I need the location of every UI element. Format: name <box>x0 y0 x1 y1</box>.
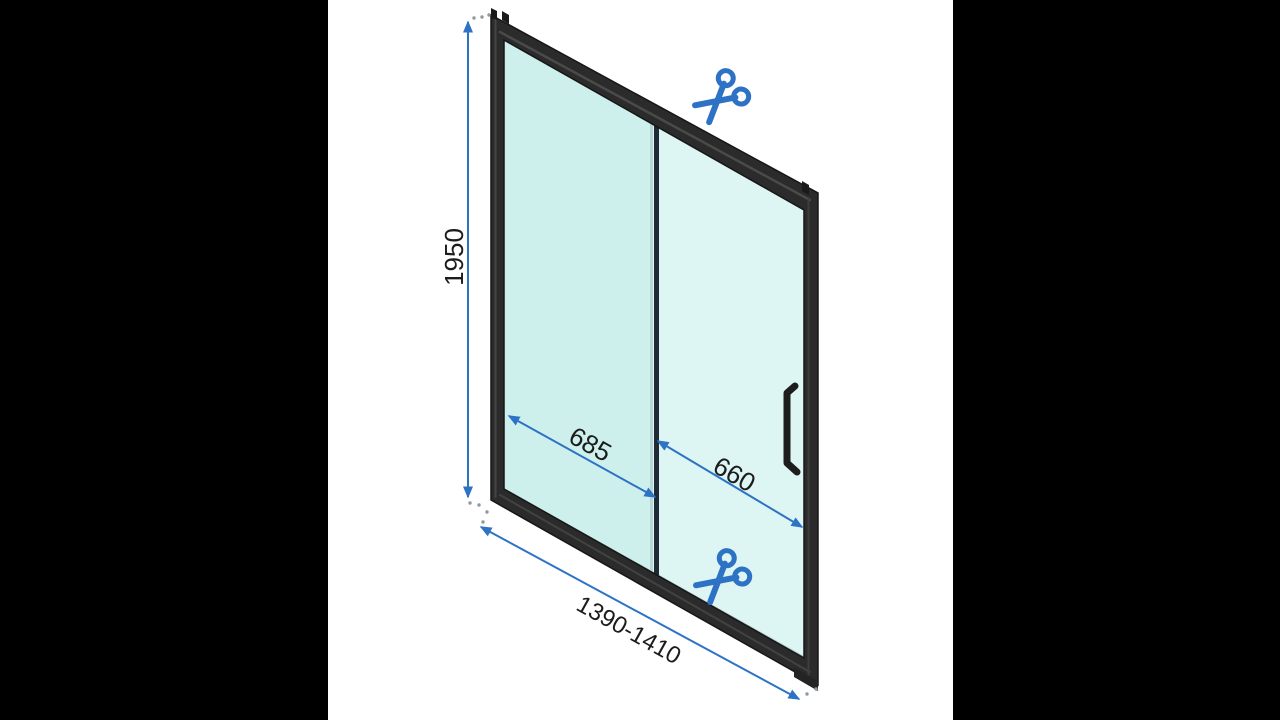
screenshot-root: 1950 1390-1410 685 660 <box>0 0 1280 720</box>
pillarbox-left <box>0 0 328 720</box>
height-dimension: 1950 <box>439 22 469 497</box>
glass-panel-left <box>504 40 651 572</box>
pillarbox-right <box>953 0 1280 720</box>
overall-width-dimension-label: 1390-1410 <box>572 591 685 670</box>
shower-door-dimension-diagram: 1950 1390-1410 685 660 <box>328 0 953 720</box>
height-dimension-label: 1950 <box>439 228 469 286</box>
scissors-icon-top <box>690 68 752 129</box>
diagram-canvas: 1950 1390-1410 685 660 <box>328 0 953 720</box>
